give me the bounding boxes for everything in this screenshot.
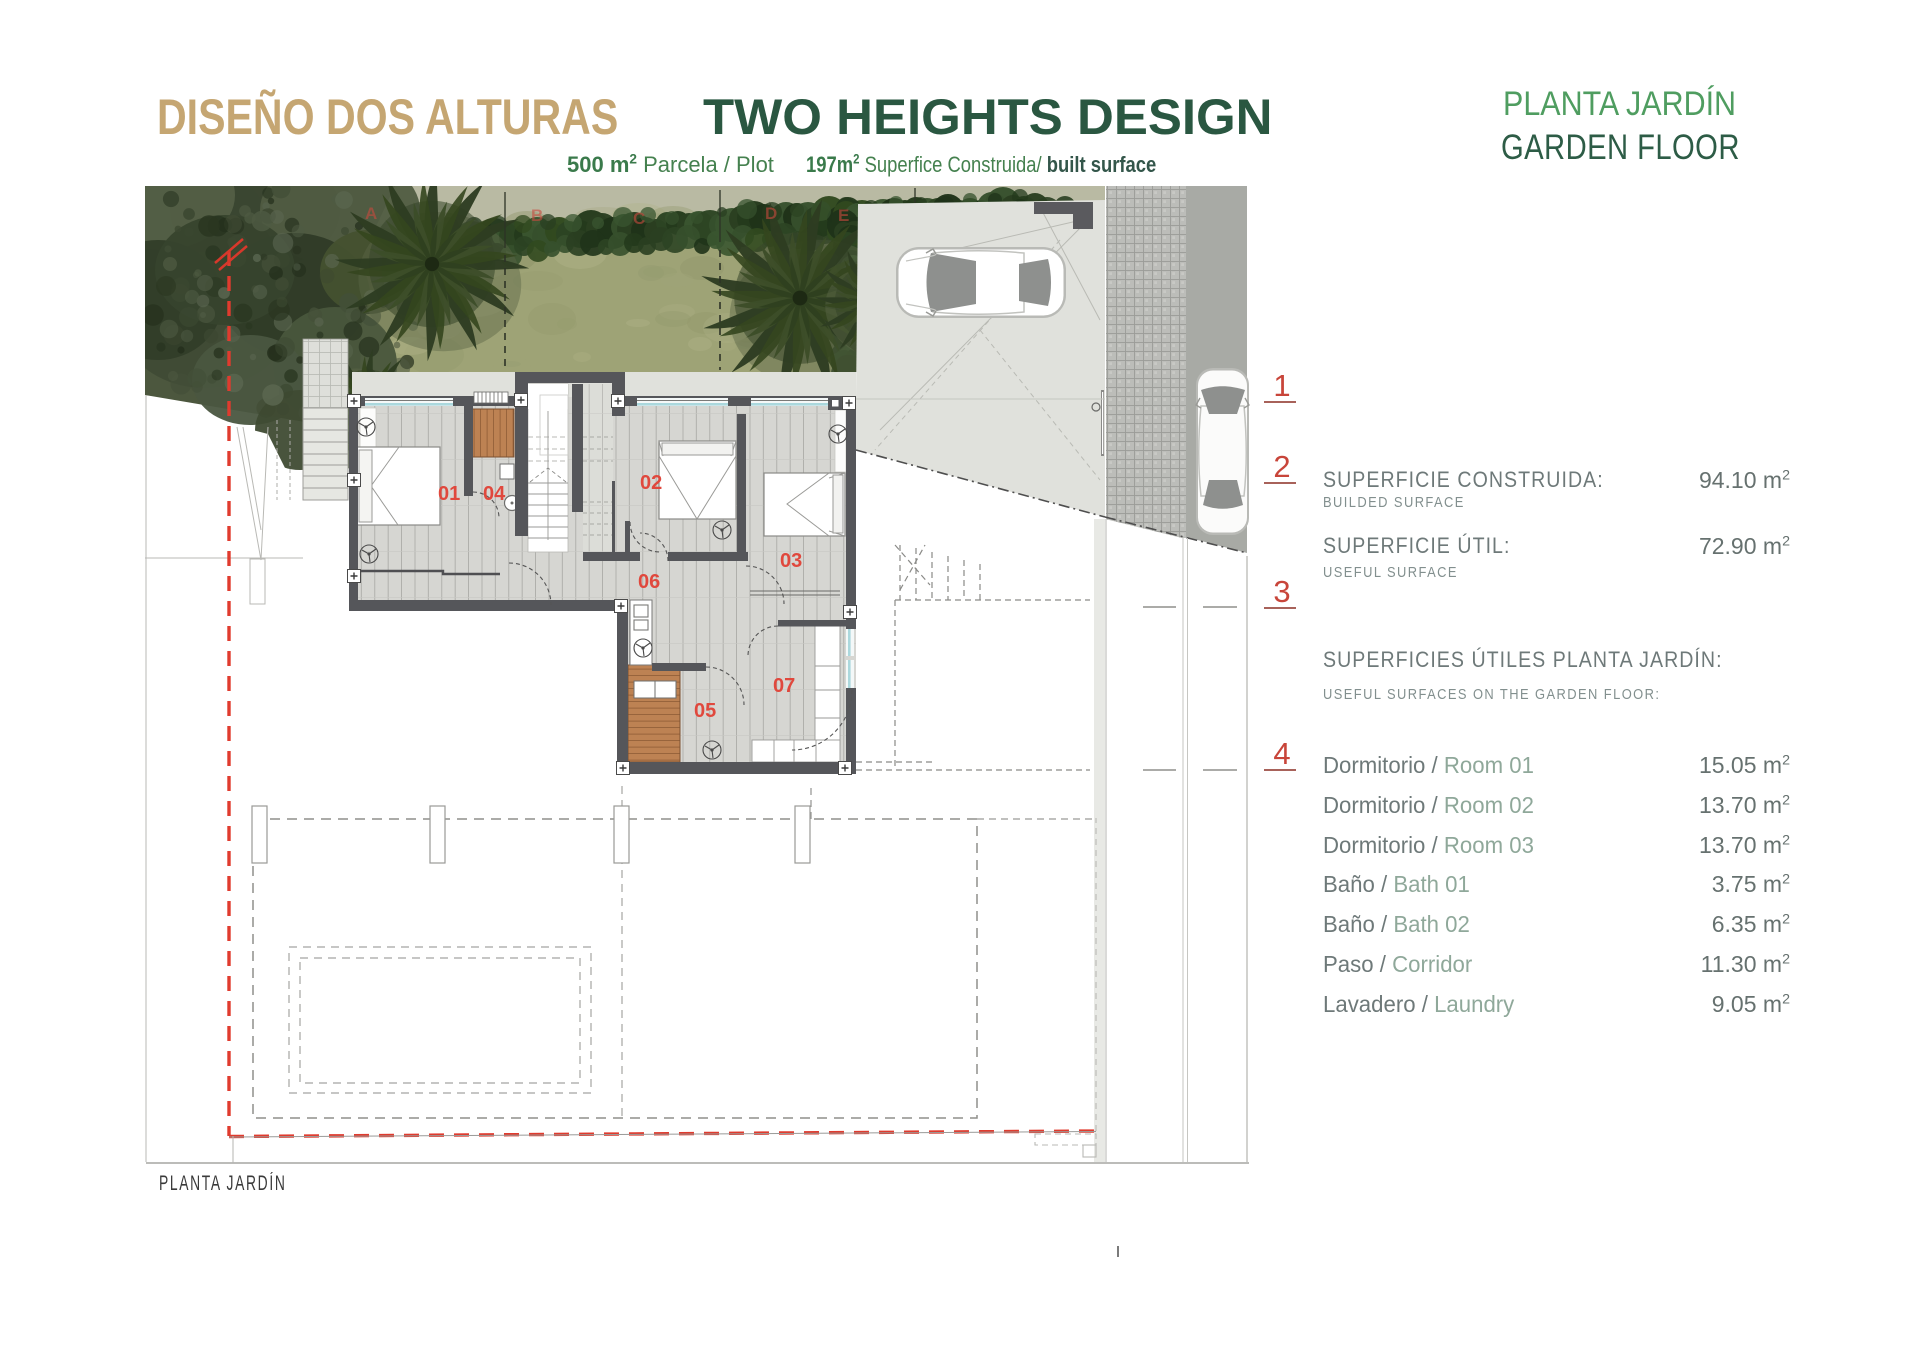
svg-text:01: 01 (438, 483, 460, 505)
svg-text:E: E (838, 206, 849, 225)
svg-text:02: 02 (640, 472, 662, 494)
svg-text:A: A (365, 204, 377, 223)
svg-text:06: 06 (638, 571, 660, 593)
svg-text:04: 04 (483, 483, 506, 505)
svg-text:05: 05 (694, 700, 716, 722)
svg-text:D: D (765, 204, 777, 223)
svg-text:B: B (531, 206, 543, 225)
svg-text:03: 03 (780, 550, 802, 572)
svg-text:07: 07 (773, 675, 795, 697)
svg-text:C: C (633, 209, 645, 228)
